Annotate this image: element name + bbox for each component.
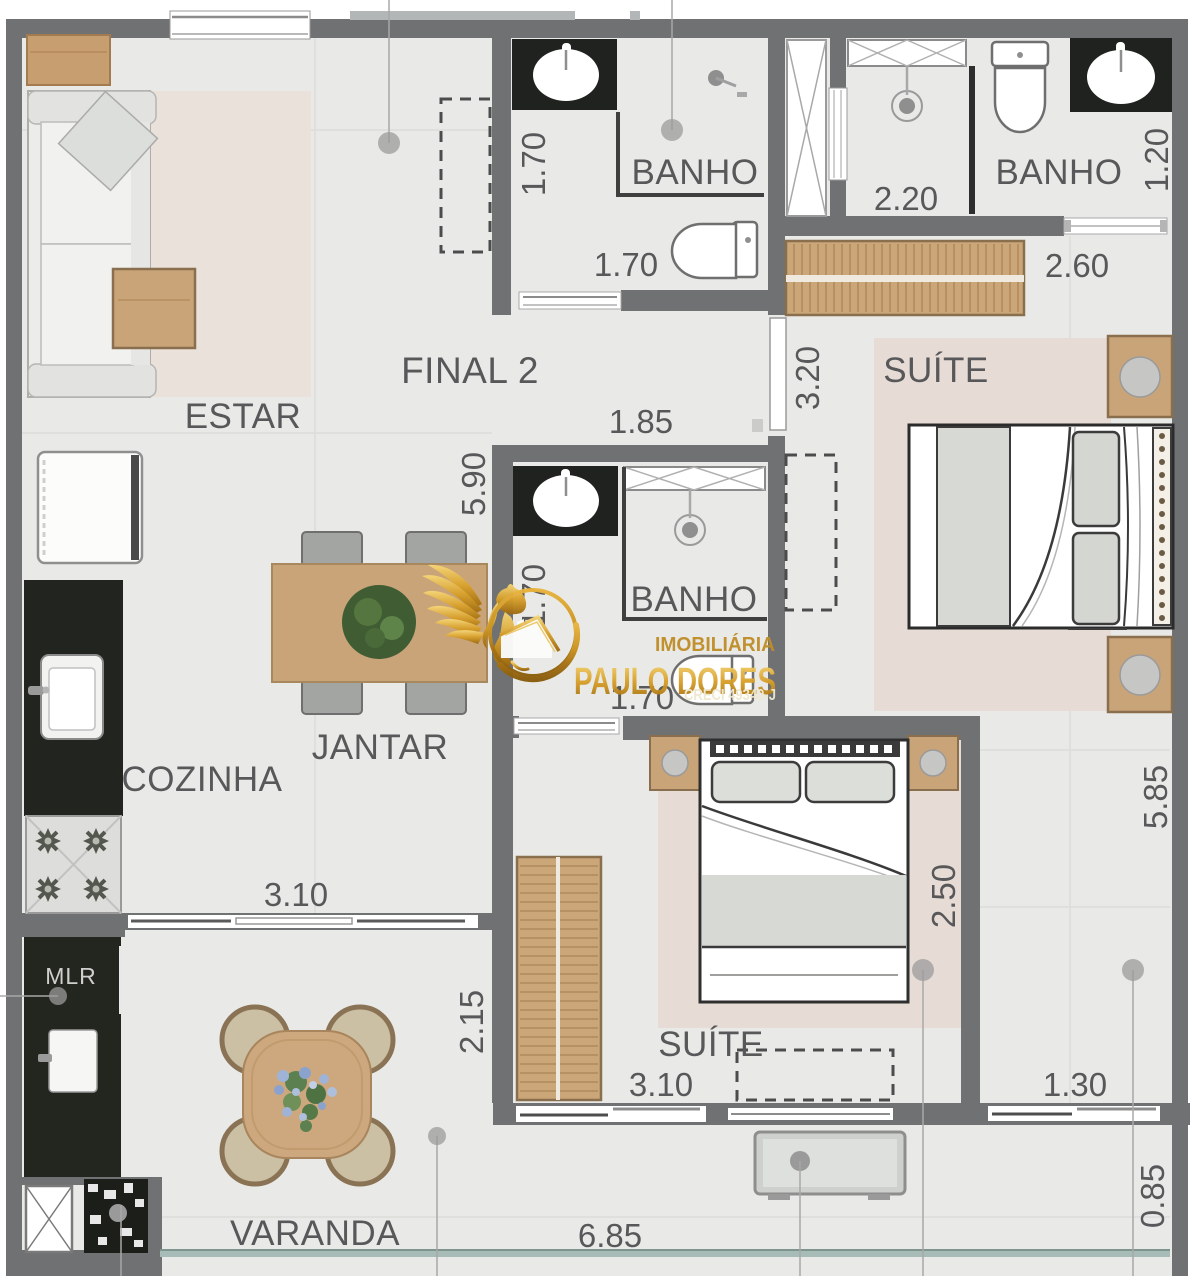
svg-text:BANHO: BANHO [632, 153, 759, 192]
svg-text:1.70: 1.70 [594, 246, 658, 283]
svg-text:1.20: 1.20 [1138, 128, 1175, 192]
svg-text:SUÍTE: SUÍTE [883, 351, 989, 390]
svg-text:3.10: 3.10 [264, 876, 328, 913]
svg-text:2.15: 2.15 [453, 990, 490, 1054]
svg-text:VARANDA: VARANDA [230, 1214, 400, 1253]
svg-text:IMOBILIÁRIA: IMOBILIÁRIA [655, 633, 775, 656]
svg-text:3.10: 3.10 [629, 1066, 693, 1103]
svg-text:2.20: 2.20 [874, 180, 938, 217]
svg-text:1.85: 1.85 [609, 403, 673, 440]
svg-text:2.50: 2.50 [925, 864, 962, 928]
svg-text:MLR: MLR [45, 963, 97, 989]
svg-text:6.85: 6.85 [578, 1217, 642, 1254]
svg-text:FINAL 2: FINAL 2 [401, 350, 539, 391]
svg-text:5.90: 5.90 [455, 452, 492, 516]
svg-text:JANTAR: JANTAR [312, 728, 449, 767]
svg-text:1.30: 1.30 [1043, 1066, 1107, 1103]
svg-text:0.85: 0.85 [1134, 1164, 1171, 1228]
svg-text:COZINHA: COZINHA [122, 760, 283, 799]
svg-text:2.60: 2.60 [1045, 247, 1109, 284]
svg-text:BANHO: BANHO [631, 580, 758, 619]
svg-text:CRECI 49340-J: CRECI 49340-J [684, 687, 776, 704]
svg-text:5.85: 5.85 [1137, 765, 1174, 829]
svg-text:1.70: 1.70 [515, 132, 552, 196]
svg-text:BANHO: BANHO [996, 153, 1123, 192]
svg-text:SUÍTE: SUÍTE [658, 1025, 764, 1064]
svg-text:3.20: 3.20 [789, 346, 826, 410]
svg-text:ESTAR: ESTAR [185, 397, 302, 436]
